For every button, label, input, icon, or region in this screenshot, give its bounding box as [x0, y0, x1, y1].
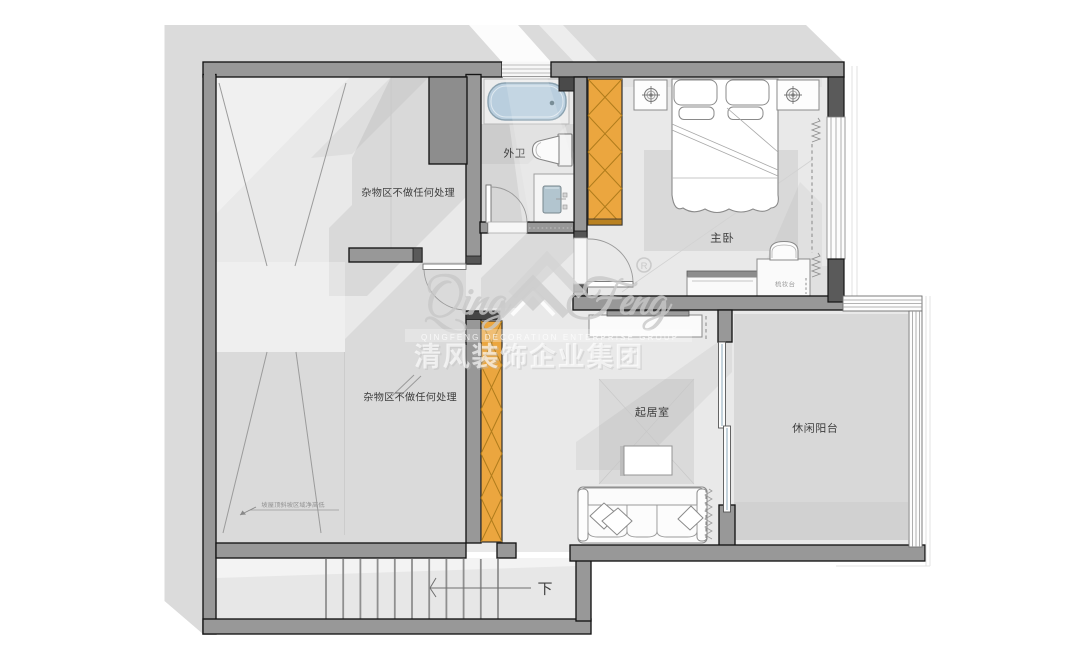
- svg-text:QINGFENG DECORATION ENTERPRISE: QINGFENG DECORATION ENTERPRISE GROUP: [421, 333, 679, 342]
- svg-text:R: R: [641, 261, 648, 272]
